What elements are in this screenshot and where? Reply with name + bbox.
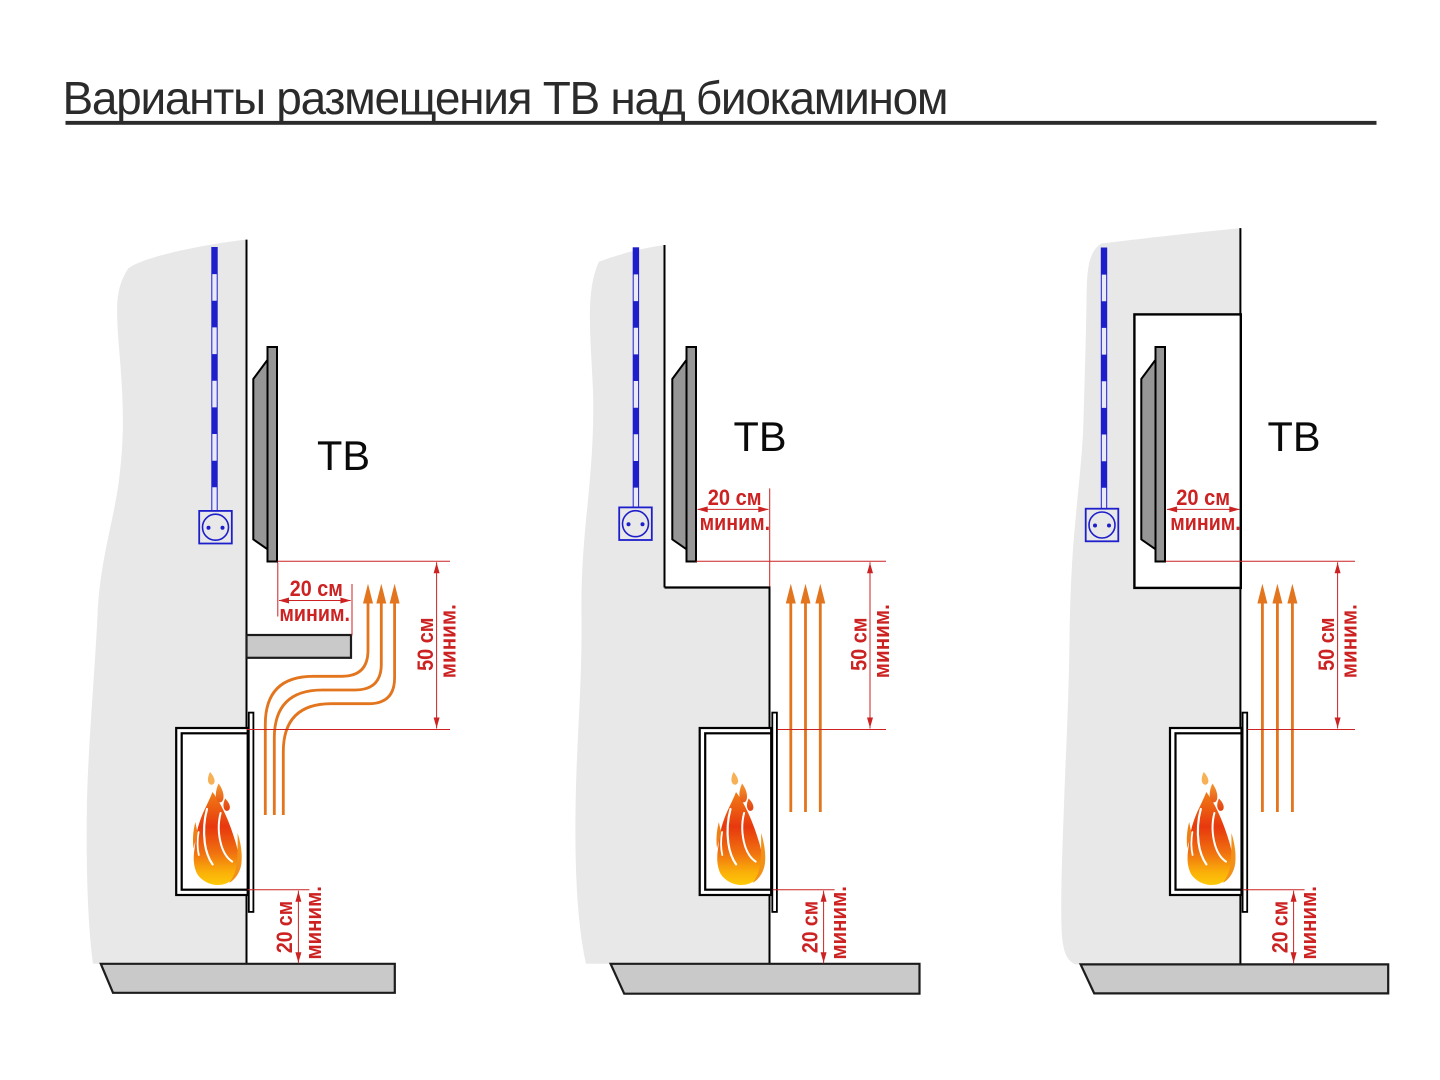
svg-text:ТВ: ТВ xyxy=(317,432,370,479)
svg-text:50 см: 50 см xyxy=(846,618,871,671)
svg-text:миним.: миним. xyxy=(301,886,326,960)
svg-text:20 см: 20 см xyxy=(1267,901,1292,953)
svg-text:миним.: миним. xyxy=(435,604,460,678)
svg-text:миним.: миним. xyxy=(700,510,771,535)
svg-text:миним.: миним. xyxy=(1170,510,1241,535)
svg-text:миним.: миним. xyxy=(1296,886,1321,960)
svg-text:миним.: миним. xyxy=(826,886,851,960)
svg-text:50 см: 50 см xyxy=(413,618,438,671)
svg-text:20 см: 20 см xyxy=(797,901,822,953)
svg-text:ТВ: ТВ xyxy=(1268,413,1321,460)
svg-text:миним.: миним. xyxy=(869,604,894,678)
svg-text:20 см: 20 см xyxy=(290,576,343,601)
svg-text:20 см: 20 см xyxy=(708,485,762,510)
svg-text:миним.: миним. xyxy=(1336,604,1361,678)
svg-text:миним.: миним. xyxy=(279,601,350,626)
svg-text:Варианты размещения ТВ над био: Варианты размещения ТВ над биокамином xyxy=(63,72,949,124)
svg-text:50 см: 50 см xyxy=(1314,617,1339,670)
svg-text:20 см: 20 см xyxy=(1176,485,1230,510)
svg-text:20 см: 20 см xyxy=(272,901,297,953)
svg-text:ТВ: ТВ xyxy=(734,413,787,460)
